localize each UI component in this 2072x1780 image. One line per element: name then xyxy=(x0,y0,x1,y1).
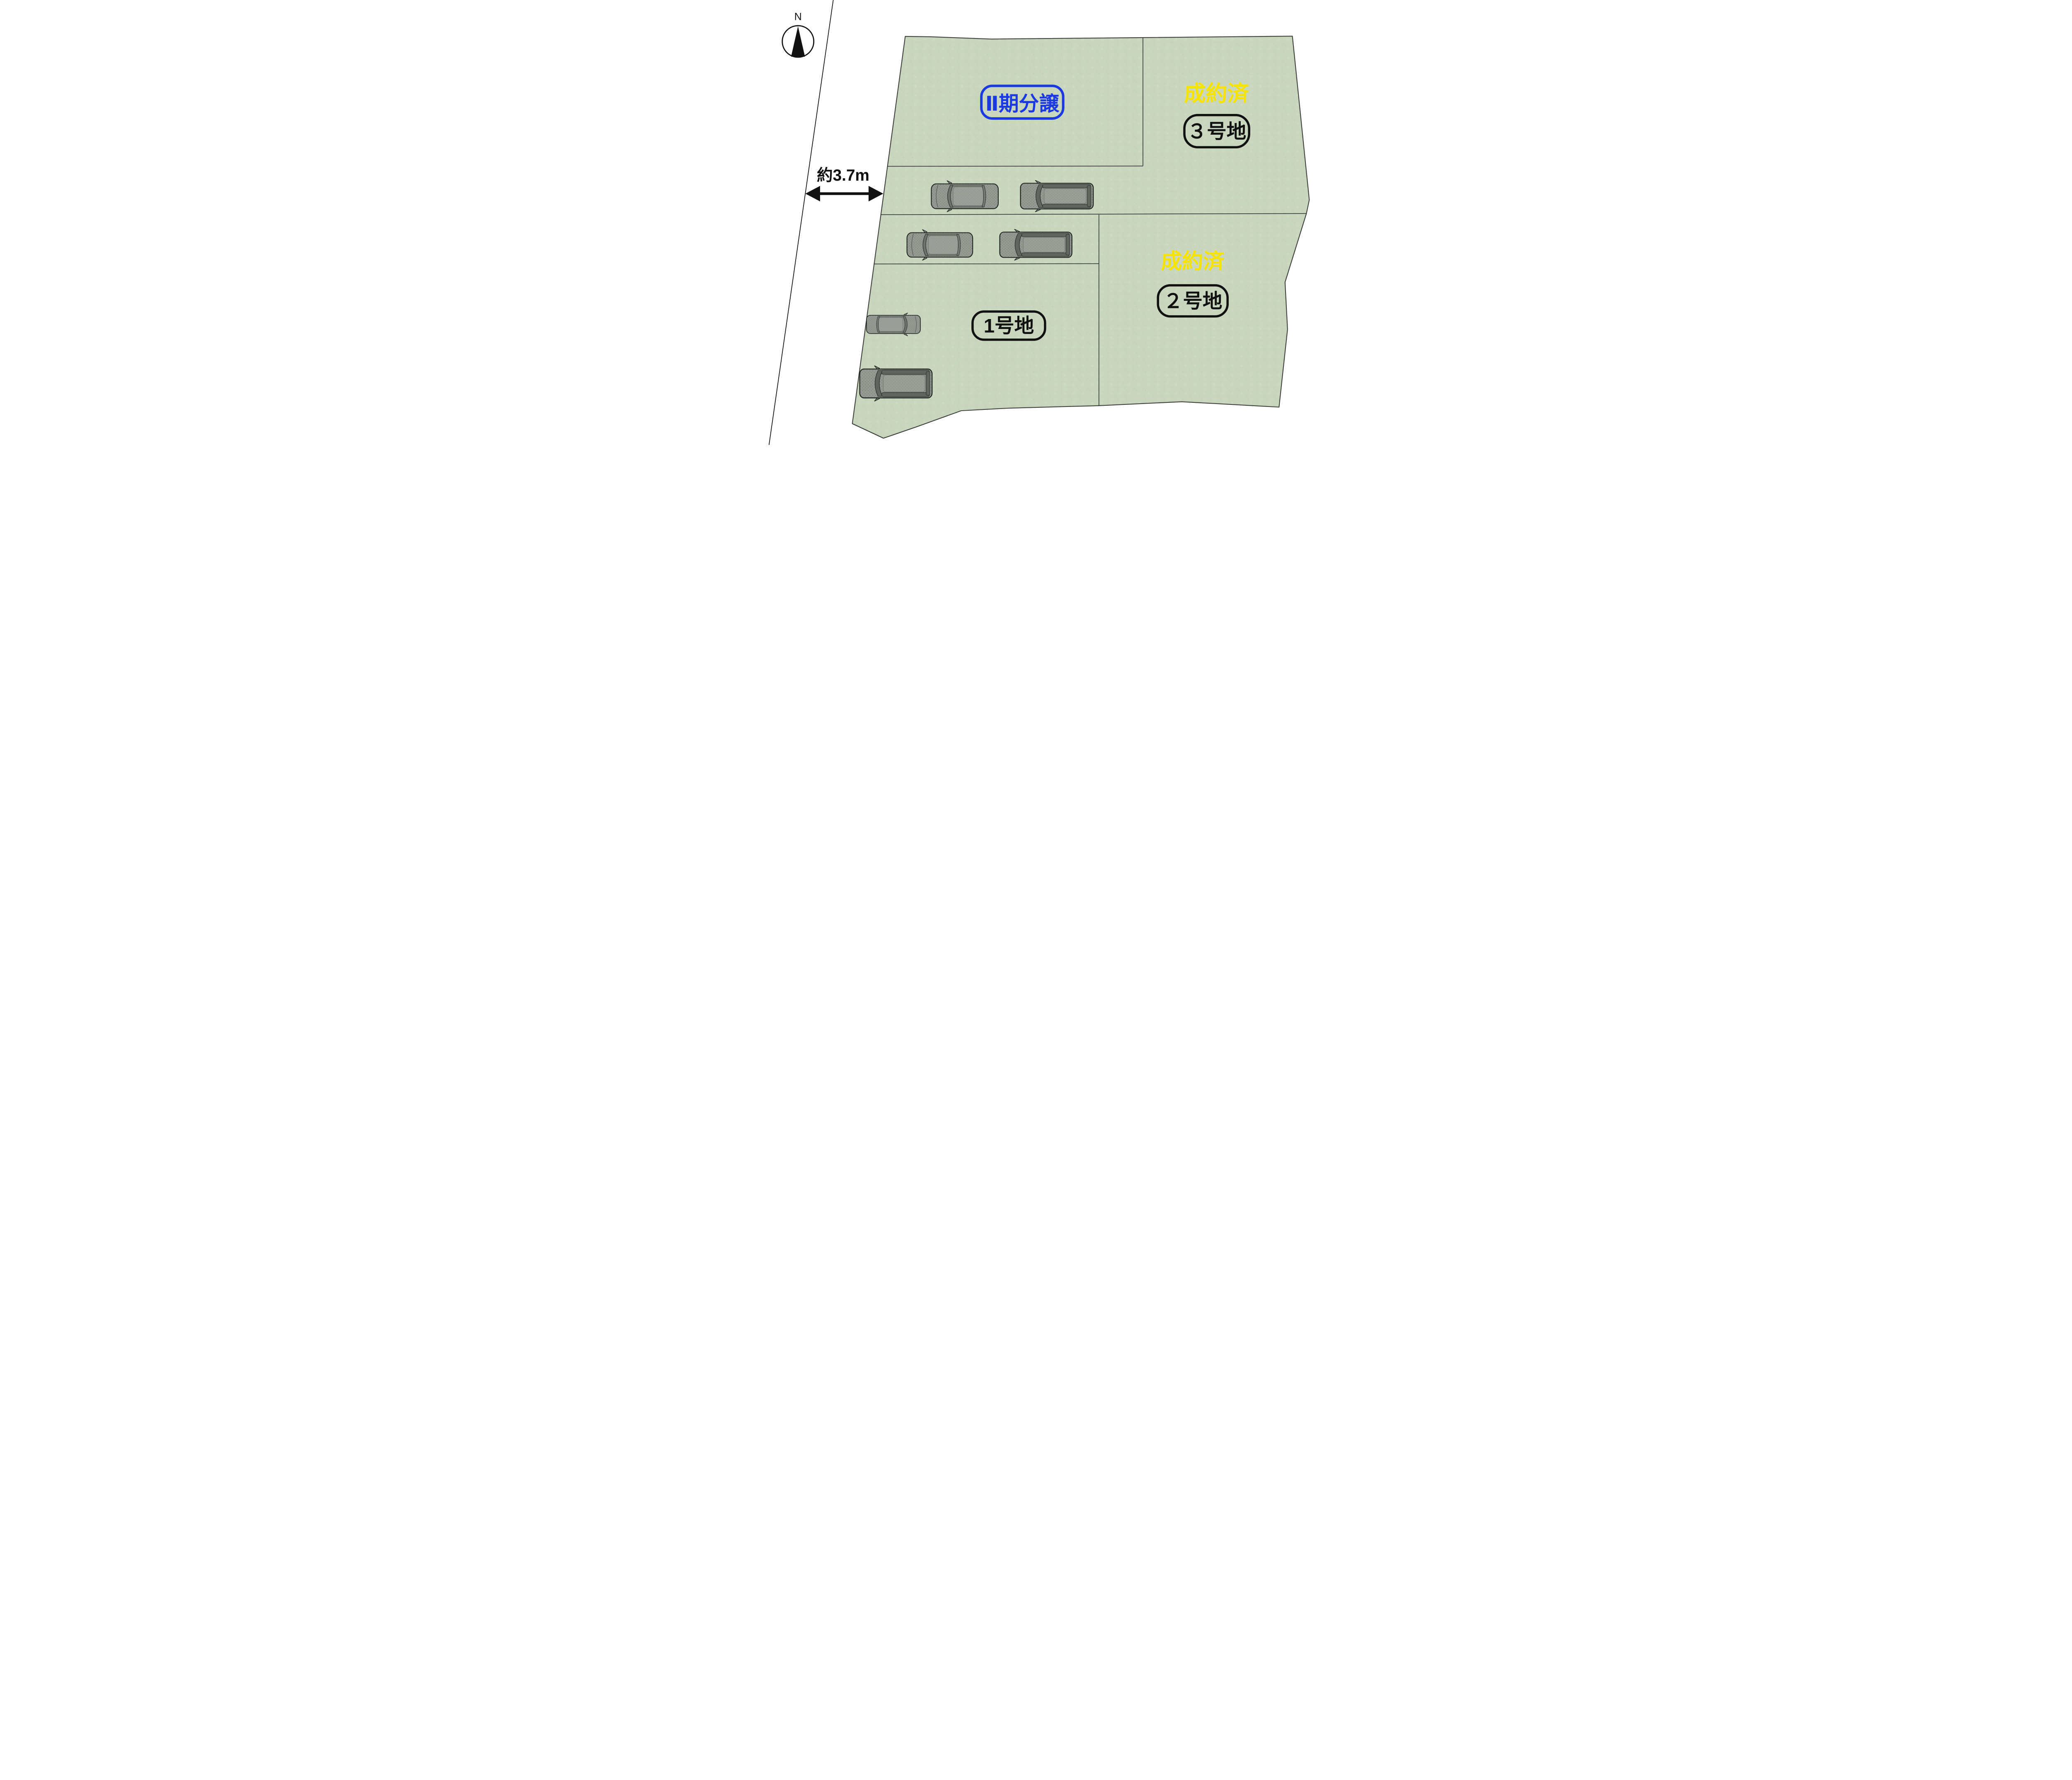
lot3-sold-label: 成約済 xyxy=(1184,82,1249,106)
car-kei-car-lot1 xyxy=(867,313,920,336)
lot3-sold-text: 成約済 xyxy=(1184,82,1249,106)
lot3-label-text: ３号地 xyxy=(1187,121,1246,143)
car-van-lot1-bottom xyxy=(860,365,932,401)
phase2-label-text: Ⅱ期分譲 xyxy=(985,93,1060,115)
compass-icon: N xyxy=(782,11,814,57)
lot2-label-text: ２号地 xyxy=(1163,290,1222,312)
lot1-label-text: 1号地 xyxy=(984,315,1034,337)
road-width-dimension: 約3.7m xyxy=(805,167,883,201)
lot2-sold-text: 成約済 xyxy=(1161,249,1225,273)
dimension-arrow-icon xyxy=(805,186,883,201)
site-plan-canvas: N 約3.7m Ⅱ期分譲 成約済 ３号地 成約済 ２号地 1号地 xyxy=(755,0,1317,445)
car-wagon-row1-left xyxy=(931,181,998,212)
car-minivan-row2-right xyxy=(1000,229,1072,261)
road-width-label: 約3.7m xyxy=(817,167,869,184)
car-minivan-row1-right xyxy=(1021,180,1094,212)
divider-phase2-bottom xyxy=(888,166,1143,167)
compass-north-label: N xyxy=(794,11,802,23)
lot2-sold-label: 成約済 xyxy=(1161,249,1225,273)
road-left-edge-line xyxy=(769,0,833,445)
divider-lot1-top xyxy=(874,264,1099,264)
car-sedan-row2-left xyxy=(907,230,973,261)
